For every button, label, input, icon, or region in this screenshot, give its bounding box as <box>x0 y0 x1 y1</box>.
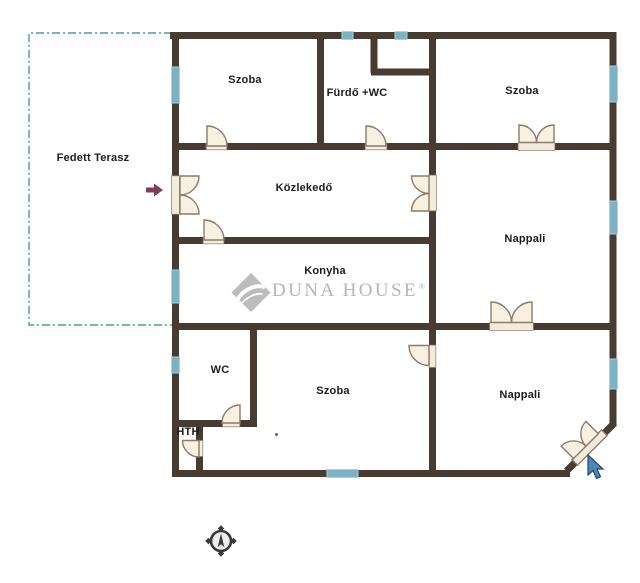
door-szoba-nappali <box>409 346 429 366</box>
window-konyha-left <box>172 270 180 303</box>
room-label-konyha: Konyha <box>304 265 346 277</box>
floor-plan-canvas: Fedett Terasz Szoba Fürdő +WC Szoba Közl… <box>0 0 640 583</box>
door-konyha <box>204 220 224 240</box>
room-label-szoba-top-right: Szoba <box>505 85 538 97</box>
window-nappali-mid-right <box>610 201 618 234</box>
compass-rose-icon <box>205 525 236 556</box>
entrance-door-leaf-top <box>180 176 199 195</box>
terrace-dashed-boundary <box>29 33 172 325</box>
window-furdo-top-1 <box>342 32 353 40</box>
registered-mark: ® <box>419 282 425 291</box>
brand-text: DUNA HOUSE <box>272 280 418 301</box>
cursor-arrow <box>588 455 603 479</box>
floor-dot <box>275 433 278 436</box>
sill-szoba-nappali <box>429 345 436 367</box>
door-hth <box>183 441 200 458</box>
room-label-kozlekedo: Közlekedő <box>276 182 333 194</box>
sill-entrance <box>172 176 180 214</box>
window-furdo-top-2 <box>395 32 407 40</box>
room-label-nappali-middle: Nappali <box>504 233 545 245</box>
door-szoba-tl <box>207 126 227 146</box>
room-label-furdo-wc: Fürdő +WC <box>327 87 388 99</box>
door-szoba-tr-leaf-right <box>537 125 555 143</box>
window-wc-left <box>172 357 180 373</box>
wall-bathroom-niche <box>371 36 436 73</box>
door-nappali-mid-leaf-left <box>491 302 512 323</box>
window-szoba-tl-left <box>172 67 180 103</box>
room-label-szoba-bottom: Szoba <box>316 385 349 397</box>
window-szoba-tr-right <box>610 66 618 102</box>
door-diagonal-group <box>560 418 607 465</box>
room-label-hth: HTH <box>176 426 199 438</box>
window-nappali-bot-right <box>610 359 618 389</box>
door-furdo <box>366 126 386 146</box>
room-label-wc: WC <box>211 364 230 376</box>
entrance-door-leaf-bottom <box>180 195 199 214</box>
logo-diamond <box>232 273 271 312</box>
mouse-cursor-icon <box>588 455 603 479</box>
duna-house-wordmark: DUNA HOUSE® <box>272 280 425 302</box>
room-label-fedett-terasz: Fedett Terasz <box>57 152 130 164</box>
door-hall-living-leaf-top <box>412 176 430 194</box>
entrance-arrow-icon <box>146 184 163 197</box>
sill-szoba-tr <box>518 143 555 151</box>
duna-house-logo-mark <box>232 273 271 312</box>
window-szoba-bottom <box>327 470 358 478</box>
door-wc <box>222 405 240 423</box>
room-label-szoba-top-left: Szoba <box>228 74 261 86</box>
sill-nappali-mid <box>490 323 534 331</box>
door-szoba-tr-leaf-left <box>519 125 537 143</box>
room-label-nappali-bottom: Nappali <box>499 389 540 401</box>
door-nappali-mid-leaf-right <box>512 302 533 323</box>
door-hall-living-leaf-bottom <box>412 194 430 212</box>
